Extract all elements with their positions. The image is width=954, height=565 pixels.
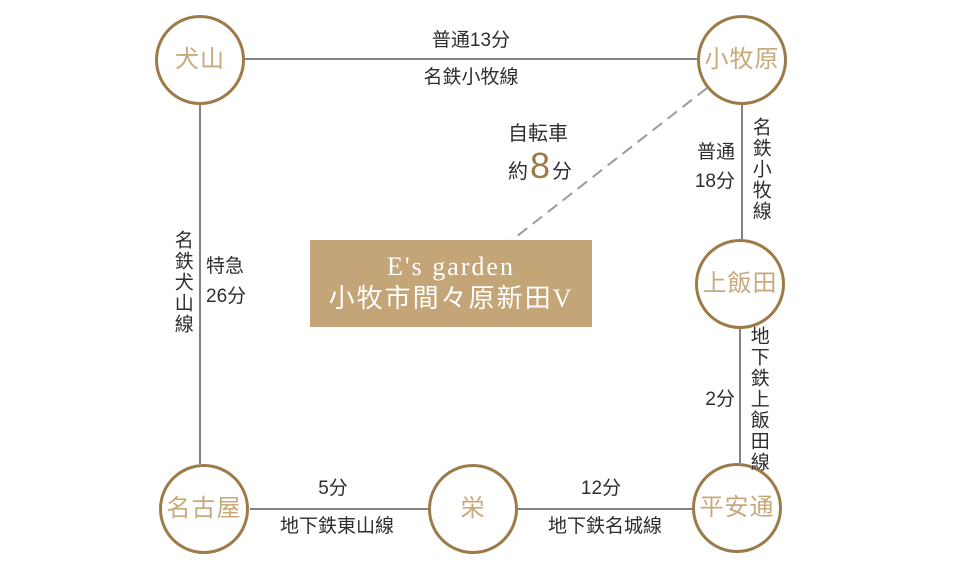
service-type: 特急 <box>206 252 246 282</box>
bicycle-minutes: 8 <box>530 148 550 184</box>
bicycle-mode: 自転車 <box>508 122 572 146</box>
station-inuyama: 犬山 <box>155 15 245 105</box>
station-nagoya: 名古屋 <box>159 464 249 554</box>
bicycle-unit: 分 <box>552 160 572 184</box>
station-heiandori: 平安通 <box>692 463 782 553</box>
time-nagoya-inuyama: 特急 26分 <box>206 252 246 312</box>
station-sakae: 栄 <box>428 464 518 554</box>
station-label: 平安通 <box>700 496 775 520</box>
linename-nagoya-inuyama: 名鉄犬山線 <box>170 230 194 335</box>
time-komakihara-kamiiida: 普通 18分 <box>695 138 735 196</box>
linename-inuyama-komakihara: 名鉄小牧線 <box>423 66 518 90</box>
time-value: 26分 <box>206 282 246 312</box>
property-name-en: E's garden <box>387 251 515 282</box>
time-nagoya-sakae: 5分 <box>318 477 348 501</box>
linename-nagoya-sakae: 地下鉄東山線 <box>280 515 394 539</box>
service-type: 普通 <box>695 138 735 167</box>
station-komakihara: 小牧原 <box>697 15 787 105</box>
time-sakae-heiandori: 12分 <box>581 477 621 501</box>
time-kamiiida-heiandori: 2分 <box>705 385 735 414</box>
bicycle-label: 自転車 約 8 分 <box>508 122 572 184</box>
station-label: 上飯田 <box>703 272 778 296</box>
linename-komakihara-kamiiida: 名鉄小牧線 <box>748 117 772 222</box>
time-value: 18分 <box>695 167 735 196</box>
bicycle-time: 約 8 分 <box>508 148 572 184</box>
station-label: 犬山 <box>175 48 225 72</box>
station-label: 小牧原 <box>705 48 780 72</box>
property-name-jp: 小牧市間々原新田V <box>329 282 574 316</box>
station-label: 栄 <box>461 497 486 521</box>
linename-kamiiida-heiandori: 地下鉄上飯田線 <box>746 326 770 473</box>
bicycle-approx: 約 <box>508 160 528 184</box>
route-diagram: 犬山 小牧原 上飯田 平安通 栄 名古屋 普通13分 名鉄小牧線 名鉄犬山線 特… <box>0 0 954 565</box>
time-inuyama-komakihara: 普通13分 <box>432 29 510 53</box>
station-label: 名古屋 <box>167 497 242 521</box>
station-kamiiida: 上飯田 <box>695 239 785 329</box>
linename-sakae-heiandori: 地下鉄名城線 <box>548 515 662 539</box>
property-box: E's garden 小牧市間々原新田V <box>310 240 592 327</box>
